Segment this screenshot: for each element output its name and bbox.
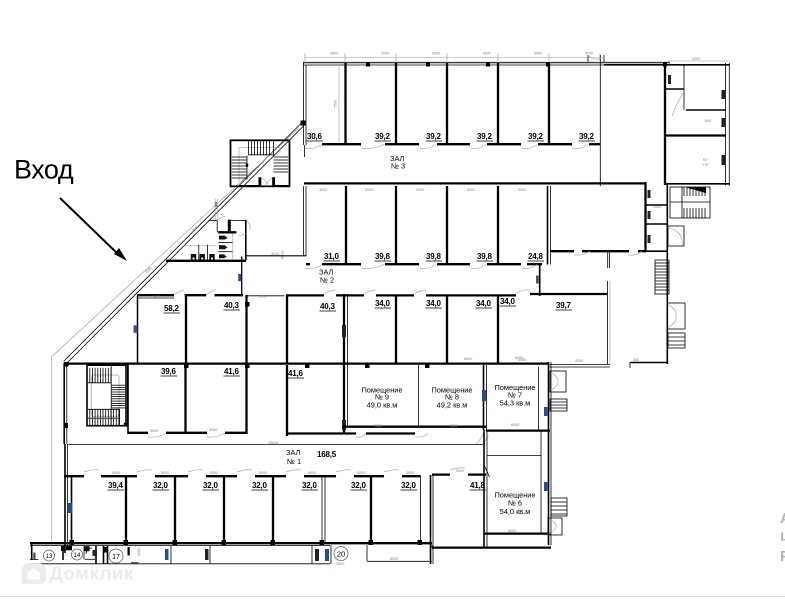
svg-text:4250: 4250 <box>575 358 584 363</box>
svg-text:1400: 1400 <box>152 294 161 299</box>
svg-text:ЗАЛ: ЗАЛ <box>286 448 301 457</box>
svg-text:39,2: 39,2 <box>375 132 391 141</box>
svg-text:5000: 5000 <box>467 187 476 192</box>
svg-text:14: 14 <box>74 553 81 559</box>
svg-text:6000: 6000 <box>511 422 520 427</box>
svg-text:34,0: 34,0 <box>476 299 492 308</box>
svg-text:№ 2: № 2 <box>320 276 334 285</box>
svg-text:4500: 4500 <box>336 561 345 566</box>
svg-text:43610: 43610 <box>268 440 279 445</box>
svg-text:Вход: Вход <box>14 155 74 185</box>
svg-text:2500: 2500 <box>653 204 662 209</box>
svg-text:5000: 5000 <box>210 470 219 475</box>
svg-text:3600: 3600 <box>330 51 339 56</box>
svg-text:32,0: 32,0 <box>351 481 367 490</box>
svg-text:58,2: 58,2 <box>164 304 180 313</box>
svg-text:13: 13 <box>46 554 53 560</box>
svg-text:39,8: 39,8 <box>426 252 442 261</box>
svg-text:31,0: 31,0 <box>324 252 340 261</box>
svg-text:5000: 5000 <box>432 51 441 56</box>
svg-text:41,6: 41,6 <box>288 369 304 378</box>
svg-text:32,0: 32,0 <box>252 481 268 490</box>
svg-text:5000: 5000 <box>585 51 594 56</box>
svg-text:4280: 4280 <box>136 547 141 556</box>
svg-text:6000: 6000 <box>464 356 473 361</box>
svg-text:39,7: 39,7 <box>556 301 572 310</box>
svg-text:5940: 5940 <box>209 427 218 432</box>
svg-text:ПП: ПП <box>703 162 709 167</box>
svg-text:32,0: 32,0 <box>153 481 169 490</box>
svg-text:5000: 5000 <box>406 470 415 475</box>
svg-text:39,2: 39,2 <box>528 132 544 141</box>
svg-text:49,0 кв.м: 49,0 кв.м <box>367 400 398 409</box>
svg-text:8910: 8910 <box>280 250 285 259</box>
svg-text:3600: 3600 <box>259 294 268 299</box>
svg-text:54,0 кв.м: 54,0 кв.м <box>500 507 531 516</box>
svg-text:39,8: 39,8 <box>375 252 391 261</box>
svg-text:5000: 5000 <box>365 187 374 192</box>
svg-text:34,0: 34,0 <box>500 297 516 306</box>
svg-text:8000: 8000 <box>390 556 399 561</box>
svg-text:А: А <box>780 510 785 527</box>
svg-text:17: 17 <box>112 554 120 561</box>
svg-text:Р: Р <box>780 548 785 565</box>
svg-text:34,0: 34,0 <box>426 299 442 308</box>
svg-text:5000: 5000 <box>259 470 268 475</box>
svg-text:5000: 5000 <box>456 468 465 473</box>
svg-text:24,8: 24,8 <box>528 252 544 261</box>
svg-text:5000: 5000 <box>112 470 121 475</box>
svg-text:5000: 5000 <box>416 187 425 192</box>
svg-text:20: 20 <box>337 550 345 559</box>
svg-text:7000: 7000 <box>374 423 383 428</box>
svg-text:4250: 4250 <box>692 56 701 61</box>
svg-text:ц: ц <box>780 528 785 545</box>
svg-text:49,2 кв.м: 49,2 кв.м <box>437 400 468 409</box>
svg-text:32,0: 32,0 <box>203 481 219 490</box>
svg-text:5000: 5000 <box>534 51 543 56</box>
svg-text:5000: 5000 <box>161 470 170 475</box>
svg-text:3600: 3600 <box>319 187 328 192</box>
svg-text:39,2: 39,2 <box>426 132 442 141</box>
svg-text:168,5: 168,5 <box>317 450 337 459</box>
svg-text:32,0: 32,0 <box>302 481 318 490</box>
svg-text:6000: 6000 <box>508 528 517 533</box>
svg-text:300: 300 <box>633 357 640 362</box>
svg-text:39,2: 39,2 <box>477 132 493 141</box>
svg-text:5940: 5940 <box>150 428 159 433</box>
svg-text:40,3: 40,3 <box>320 302 336 311</box>
svg-text:5000: 5000 <box>308 470 317 475</box>
svg-text:Домклик: Домклик <box>50 563 134 584</box>
svg-text:7000: 7000 <box>449 423 458 428</box>
svg-text:41,6: 41,6 <box>224 367 240 376</box>
svg-text:34,0: 34,0 <box>375 299 391 308</box>
svg-text:40,3: 40,3 <box>224 301 240 310</box>
svg-text:41,8: 41,8 <box>470 481 486 490</box>
svg-text:39,2: 39,2 <box>579 132 595 141</box>
svg-text:6000: 6000 <box>515 355 524 360</box>
svg-text:ЗАЛ: ЗАЛ <box>704 118 712 123</box>
svg-text:№ 1: № 1 <box>287 457 301 466</box>
svg-text:5000: 5000 <box>381 51 390 56</box>
svg-text:39,6: 39,6 <box>161 367 177 376</box>
svg-text:7500: 7500 <box>333 99 338 108</box>
svg-text:№ 3: № 3 <box>391 162 405 171</box>
svg-text:5000: 5000 <box>483 51 492 56</box>
svg-text:5000: 5000 <box>518 187 527 192</box>
svg-text:3010: 3010 <box>271 251 280 256</box>
svg-text:39,4: 39,4 <box>108 481 124 490</box>
svg-text:39,8: 39,8 <box>477 252 493 261</box>
svg-text:30,6: 30,6 <box>307 132 323 141</box>
svg-text:5000: 5000 <box>357 470 366 475</box>
svg-text:32,0: 32,0 <box>401 481 417 490</box>
svg-text:54,3 кв.м: 54,3 кв.м <box>500 398 531 407</box>
